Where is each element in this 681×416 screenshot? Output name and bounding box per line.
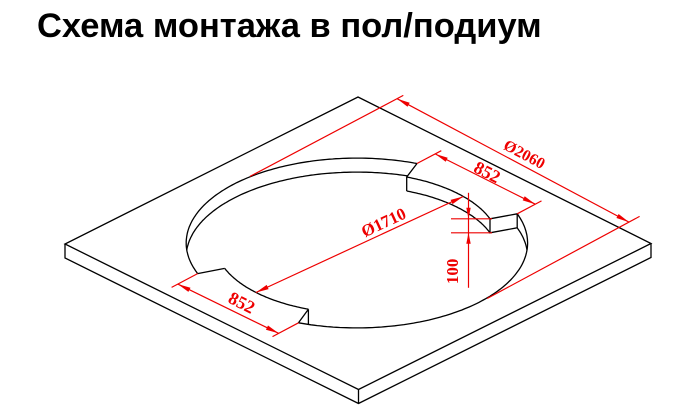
svg-text:Ø2060: Ø2060 <box>500 137 547 173</box>
svg-text:852: 852 <box>225 288 258 318</box>
svg-text:100: 100 <box>443 259 462 285</box>
svg-text:852: 852 <box>471 157 504 187</box>
svg-text:Ø1710: Ø1710 <box>358 204 409 241</box>
